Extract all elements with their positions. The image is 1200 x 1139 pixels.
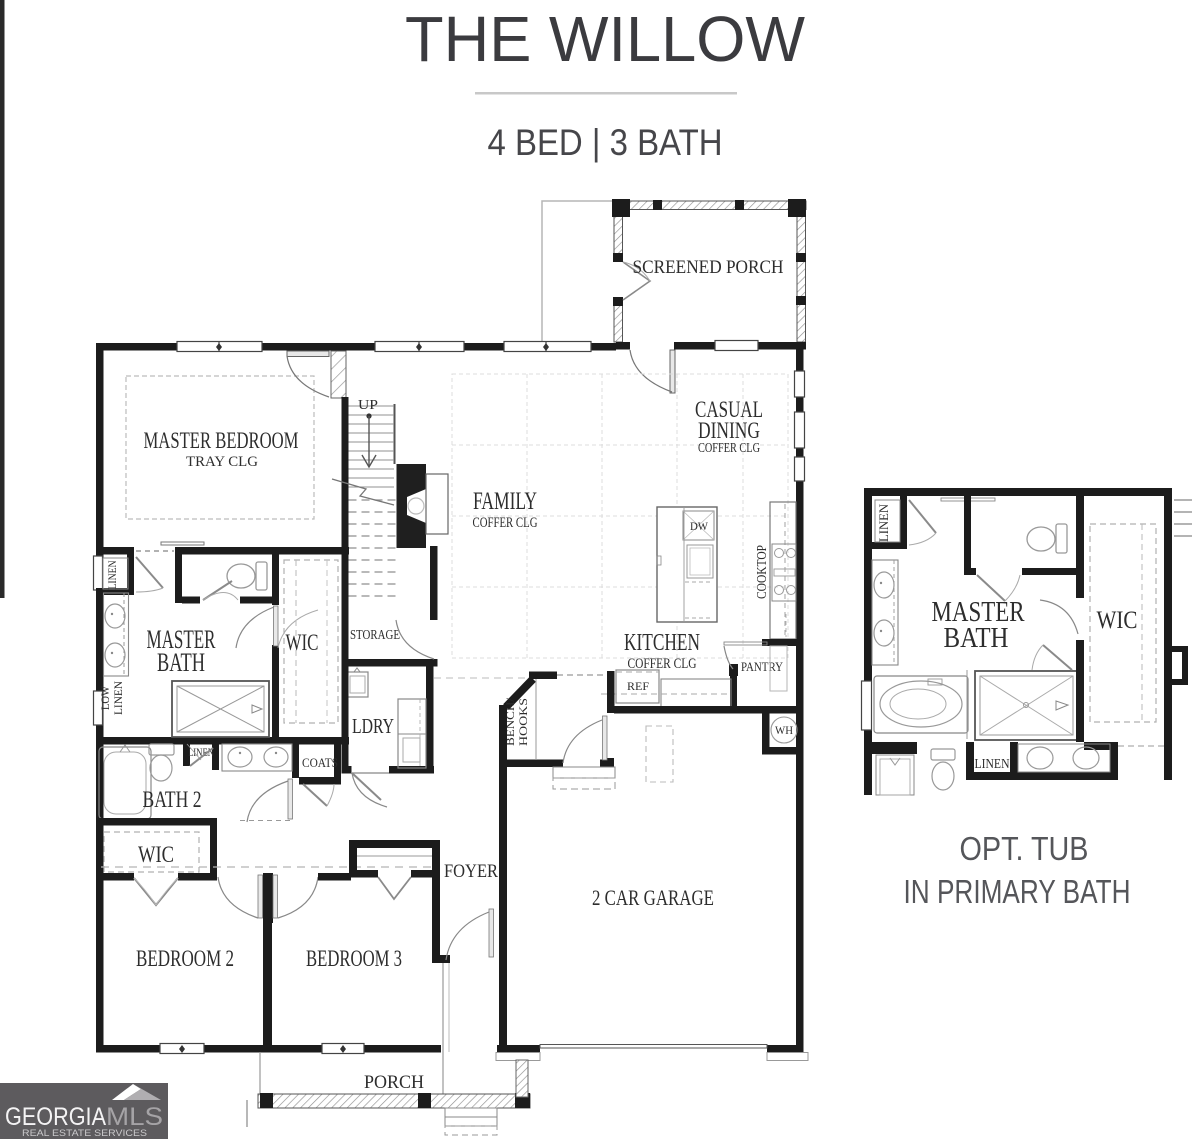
svg-text:TRAY CLG: TRAY CLG	[186, 454, 258, 470]
svg-text:REAL ESTATE SERVICES: REAL ESTATE SERVICES	[22, 1128, 147, 1138]
svg-text:IN PRIMARY BATH: IN PRIMARY BATH	[904, 873, 1131, 910]
svg-text:KITCHEN: KITCHEN	[624, 630, 700, 656]
svg-text:FOYER: FOYER	[444, 861, 498, 882]
svg-text:LINEN: LINEN	[876, 503, 891, 542]
svg-text:WIC: WIC	[1097, 607, 1138, 634]
svg-text:COATS: COATS	[302, 756, 338, 770]
svg-text:BEDROOM 2: BEDROOM 2	[136, 946, 234, 971]
svg-text:UP: UP	[358, 398, 378, 413]
svg-text:DINING: DINING	[698, 418, 760, 443]
svg-text:DW: DW	[690, 519, 709, 533]
svg-text:MASTER BEDROOM: MASTER BEDROOM	[144, 428, 299, 453]
svg-text:LOW: LOW	[98, 685, 112, 710]
svg-text:LINEN: LINEN	[111, 681, 125, 715]
svg-text:PANTRY: PANTRY	[741, 660, 783, 674]
svg-text:BATH: BATH	[944, 623, 1009, 654]
svg-text:WH: WH	[775, 723, 793, 737]
svg-text:LINEN: LINEN	[105, 560, 119, 589]
svg-text:BATH 2: BATH 2	[143, 787, 202, 812]
svg-text:LINEN: LINEN	[975, 757, 1010, 772]
svg-text:WIC: WIC	[138, 842, 174, 867]
svg-text:HOOKS: HOOKS	[518, 698, 530, 746]
svg-text:LDRY: LDRY	[352, 714, 394, 738]
svg-text:GEORGIAMLS: GEORGIAMLS	[5, 1103, 163, 1131]
svg-text:FAMILY: FAMILY	[473, 488, 537, 515]
svg-text:SCREENED PORCH: SCREENED PORCH	[633, 257, 784, 278]
svg-text:PORCH: PORCH	[364, 1072, 424, 1093]
svg-text:BATH: BATH	[157, 648, 205, 677]
svg-text:REF: REF	[627, 679, 649, 693]
svg-text:COOKTOP: COOKTOP	[755, 545, 770, 599]
svg-text:WIC: WIC	[286, 630, 319, 655]
svg-text:4 BED | 3 BATH: 4 BED | 3 BATH	[488, 122, 723, 163]
svg-text:THE WILLOW: THE WILLOW	[405, 3, 806, 75]
svg-text:COFFER CLG: COFFER CLG	[698, 441, 760, 456]
svg-text:OPT. TUB: OPT. TUB	[960, 830, 1089, 867]
svg-text:BEDROOM 3: BEDROOM 3	[306, 946, 402, 971]
svg-text:STORAGE: STORAGE	[350, 628, 400, 643]
svg-text:2 CAR GARAGE: 2 CAR GARAGE	[592, 885, 714, 910]
svg-text:COFFER CLG: COFFER CLG	[473, 515, 538, 531]
